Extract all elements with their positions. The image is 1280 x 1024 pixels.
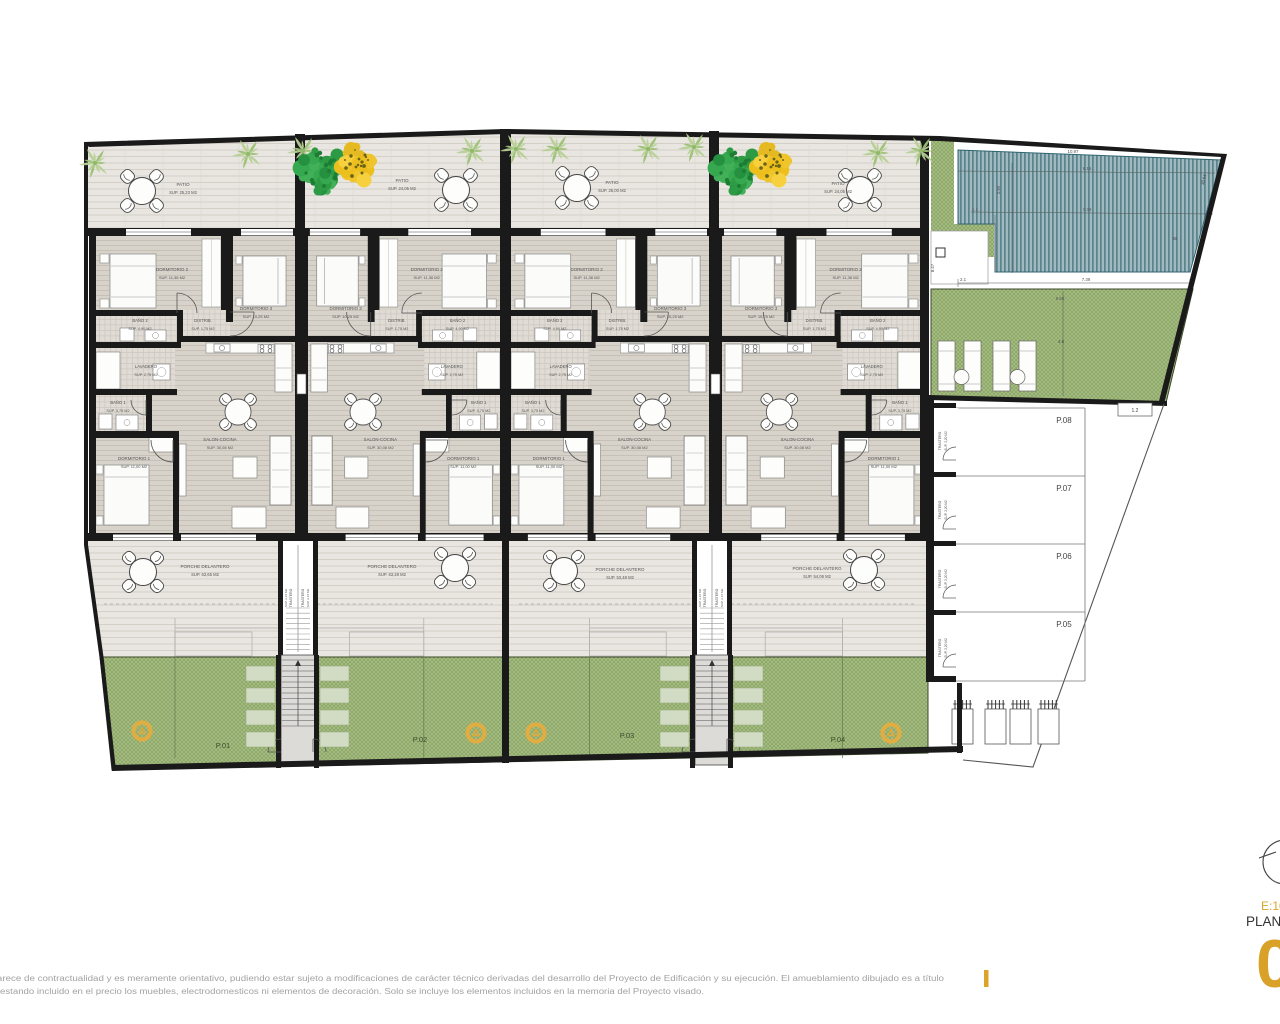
svg-text:1.1: 1.1 <box>972 207 979 212</box>
svg-text:SUP. 63,28 M2: SUP. 63,28 M2 <box>378 572 407 577</box>
svg-text:DORMITORIO 1: DORMITORIO 1 <box>533 456 566 461</box>
svg-text:SUP. 2,75 M2: SUP. 2,75 M2 <box>134 373 157 377</box>
svg-text:P.06: P.06 <box>1056 552 1072 561</box>
svg-text:SUP. 4,90 M2: SUP. 4,90 M2 <box>446 327 469 331</box>
svg-text:SUP. 11,00 M2: SUP. 11,00 M2 <box>450 464 477 469</box>
svg-text:TRASTERO: TRASTERO <box>301 588 305 607</box>
svg-text:LAVADERO: LAVADERO <box>441 364 464 369</box>
svg-text:SUP. 1,75 M2: SUP. 1,75 M2 <box>606 327 629 331</box>
svg-text:SUP. 2,20 M2: SUP. 2,20 M2 <box>944 569 948 589</box>
svg-text:7.39: 7.39 <box>1083 207 1092 212</box>
svg-text:SUP. 4,90 M2: SUP. 4,90 M2 <box>866 327 889 331</box>
svg-text:BAÑO 1: BAÑO 1 <box>471 400 487 405</box>
svg-text:o estando incluido en el: o estando incluido en el precio los mueb… <box>0 987 704 996</box>
svg-text:SUP. 11,00 M2: SUP. 11,00 M2 <box>871 464 898 469</box>
svg-text:PATIO: PATIO <box>395 178 409 183</box>
svg-text:SALON-COCINA: SALON-COCINA <box>781 437 814 442</box>
svg-text:P.01: P.01 <box>216 741 230 750</box>
svg-text:SUP. 2,16 M2: SUP. 2,16 M2 <box>698 589 702 608</box>
svg-text:SUP. 30,08 M2: SUP. 30,08 M2 <box>784 445 811 450</box>
svg-text:SUP. 1,75 M2: SUP. 1,75 M2 <box>803 327 826 331</box>
svg-text:carece de contractualidad y: carece de contractualidad y es meramente… <box>0 974 945 983</box>
svg-text:TRASTERO: TRASTERO <box>289 588 293 607</box>
svg-text:DORMITORIO 2: DORMITORIO 2 <box>411 267 444 272</box>
svg-text:P.02: P.02 <box>413 735 427 744</box>
svg-text:SUP. 63,65 M2: SUP. 63,65 M2 <box>191 572 220 577</box>
svg-text:TRASTERO: TRASTERO <box>938 569 942 588</box>
svg-text:DISTRIB.: DISTRIB. <box>806 318 824 323</box>
svg-text:BAÑO 2: BAÑO 2 <box>132 318 148 323</box>
svg-text:TRASTERO: TRASTERO <box>703 588 707 607</box>
svg-text:SALON-COCINA: SALON-COCINA <box>618 437 651 442</box>
svg-text:SUP. 2,16 M2: SUP. 2,16 M2 <box>284 589 288 608</box>
svg-text:SUP. 2,75 M2: SUP. 2,75 M2 <box>549 373 572 377</box>
svg-text:SUP. 4,90 M2: SUP. 4,90 M2 <box>128 327 151 331</box>
svg-text:TRASTERO: TRASTERO <box>938 500 942 519</box>
svg-text:2.1: 2.1 <box>960 277 967 282</box>
svg-text:SUP. 53,48 M2: SUP. 53,48 M2 <box>606 575 635 580</box>
svg-text:DISTRIB.: DISTRIB. <box>609 318 627 323</box>
svg-text:PORCHE DELANTERO: PORCHE DELANTERO <box>792 566 841 571</box>
svg-text:P.05: P.05 <box>1056 620 1072 629</box>
svg-text:SUP. 3,75 M2: SUP. 3,75 M2 <box>467 409 490 413</box>
svg-text:SUP. 11,00 M2: SUP. 11,00 M2 <box>536 464 563 469</box>
svg-text:SUP. 11,36 M2: SUP. 11,36 M2 <box>159 275 186 280</box>
svg-text:SUP. 10,25 M2: SUP. 10,25 M2 <box>243 314 270 319</box>
svg-text:DORMITORIO 1: DORMITORIO 1 <box>868 456 901 461</box>
svg-text:SUP. 10,25 M2: SUP. 10,25 M2 <box>332 314 359 319</box>
svg-text:SUP. 11,36 M2: SUP. 11,36 M2 <box>414 275 441 280</box>
svg-text:DORMITORIO 3: DORMITORIO 3 <box>240 306 273 311</box>
svg-text:TRASTERO: TRASTERO <box>715 588 719 607</box>
svg-text:LAVADERO: LAVADERO <box>135 364 158 369</box>
svg-text:SUP. 30,08 M2: SUP. 30,08 M2 <box>207 445 234 450</box>
svg-text:SUP. 10,25 M2: SUP. 10,25 M2 <box>748 314 775 319</box>
svg-text:SUP. 2,16 M2: SUP. 2,16 M2 <box>720 589 724 608</box>
svg-text:PORCHE DELANTERO: PORCHE DELANTERO <box>367 564 416 569</box>
svg-text:SUP. 24,05 M2: SUP. 24,05 M2 <box>824 189 853 194</box>
svg-text:SUP. 3,75 M2: SUP. 3,75 M2 <box>888 409 911 413</box>
svg-text:DORMITORIO 3: DORMITORIO 3 <box>330 306 363 311</box>
svg-text:TRASTERO: TRASTERO <box>938 638 942 657</box>
svg-text:50: 50 <box>1173 236 1178 241</box>
svg-text:SUP. 1,75 M2: SUP. 1,75 M2 <box>385 327 408 331</box>
svg-text:SUP. 4,90 M2: SUP. 4,90 M2 <box>543 327 566 331</box>
svg-text:BAÑO 1: BAÑO 1 <box>525 400 541 405</box>
svg-text:SUP. 30,08 M2: SUP. 30,08 M2 <box>621 445 648 450</box>
svg-text:PATIO: PATIO <box>605 180 619 185</box>
svg-text:P.03: P.03 <box>620 731 634 740</box>
svg-text:SUP. 24,05 M2: SUP. 24,05 M2 <box>388 186 417 191</box>
svg-text:SALON-COCINA: SALON-COCINA <box>364 437 397 442</box>
svg-text:SUP. 2,16 M2: SUP. 2,16 M2 <box>306 589 310 608</box>
svg-text:01: 01 <box>1256 926 1280 1002</box>
svg-text:SUP. 25,23 M2: SUP. 25,23 M2 <box>169 190 198 195</box>
svg-text:SUP. 10,25 M2: SUP. 10,25 M2 <box>657 314 684 319</box>
svg-text:SUP. 2,20 M2: SUP. 2,20 M2 <box>944 500 948 520</box>
svg-text:SUP. 3,75 M2: SUP. 3,75 M2 <box>521 409 544 413</box>
svg-text:9.15: 9.15 <box>1083 166 1092 171</box>
svg-text:1.2: 1.2 <box>1132 408 1139 414</box>
svg-text:SUP. 11,36 M2: SUP. 11,36 M2 <box>832 275 859 280</box>
svg-text:SALON-COCINA: SALON-COCINA <box>203 437 236 442</box>
svg-text:SUP. 1,75 M2: SUP. 1,75 M2 <box>191 327 214 331</box>
svg-text:BAÑO 1: BAÑO 1 <box>110 400 126 405</box>
svg-text:2.94: 2.94 <box>996 185 1001 194</box>
svg-text:P.07: P.07 <box>1056 484 1072 493</box>
svg-text:SUP. 2,75 M2: SUP. 2,75 M2 <box>860 373 883 377</box>
svg-text:DORMITORIO 1: DORMITORIO 1 <box>447 456 480 461</box>
svg-text:SUP. 2,20 M2: SUP. 2,20 M2 <box>944 431 948 451</box>
svg-text:4.6: 4.6 <box>1058 339 1065 344</box>
svg-text:DORMITORIO 3: DORMITORIO 3 <box>745 306 778 311</box>
svg-text:PATIO: PATIO <box>176 182 190 187</box>
svg-text:BAÑO 2: BAÑO 2 <box>450 318 466 323</box>
svg-text:DORMITORIO 1: DORMITORIO 1 <box>118 456 151 461</box>
svg-text:TRASTERO: TRASTERO <box>938 431 942 450</box>
svg-text:7.39: 7.39 <box>1082 277 1091 282</box>
svg-text:BAÑO 2: BAÑO 2 <box>870 318 886 323</box>
svg-text:DISTRIB.: DISTRIB. <box>388 318 406 323</box>
svg-text:DORMITORIO 2: DORMITORIO 2 <box>830 267 863 272</box>
svg-text:9.60: 9.60 <box>1056 296 1065 301</box>
svg-text:8.47: 8.47 <box>930 263 935 272</box>
svg-text:SUP. 11,36 M2: SUP. 11,36 M2 <box>573 275 600 280</box>
svg-text:PATIO: PATIO <box>831 181 845 186</box>
svg-text:SUP. 26,00 M2: SUP. 26,00 M2 <box>598 188 627 193</box>
svg-text:10.97: 10.97 <box>1068 149 1080 154</box>
svg-text:SUP. 3,75 M2: SUP. 3,75 M2 <box>106 409 129 413</box>
svg-text:PORCHE DELANTERO: PORCHE DELANTERO <box>180 564 229 569</box>
svg-text:BAÑO 1: BAÑO 1 <box>892 400 908 405</box>
svg-text:DORMITORIO 2: DORMITORIO 2 <box>571 267 604 272</box>
svg-text:SUP. 54,06 M2: SUP. 54,06 M2 <box>803 574 832 579</box>
svg-text:SUP. 2,75 M2: SUP. 2,75 M2 <box>440 373 463 377</box>
svg-text:DISTRIB.: DISTRIB. <box>194 318 212 323</box>
svg-text:BAÑO 2: BAÑO 2 <box>547 318 563 323</box>
svg-text:SUP. 30,08 M2: SUP. 30,08 M2 <box>367 445 394 450</box>
svg-text:DORMITORIO 3: DORMITORIO 3 <box>654 306 687 311</box>
svg-text:DORMITORIO 2: DORMITORIO 2 <box>156 267 189 272</box>
svg-text:SUP. 11,00 M2: SUP. 11,00 M2 <box>121 464 148 469</box>
svg-text:E:10: E:10 <box>1261 899 1280 913</box>
svg-text:SUP. 2,20 M2: SUP. 2,20 M2 <box>944 638 948 658</box>
svg-text:P.08: P.08 <box>1056 416 1072 425</box>
svg-text:LAVADERO: LAVADERO <box>861 364 884 369</box>
svg-text:LAVADERO: LAVADERO <box>550 364 573 369</box>
svg-text:PORCHE DELANTERO: PORCHE DELANTERO <box>595 567 644 572</box>
svg-text:P.04: P.04 <box>831 735 845 744</box>
